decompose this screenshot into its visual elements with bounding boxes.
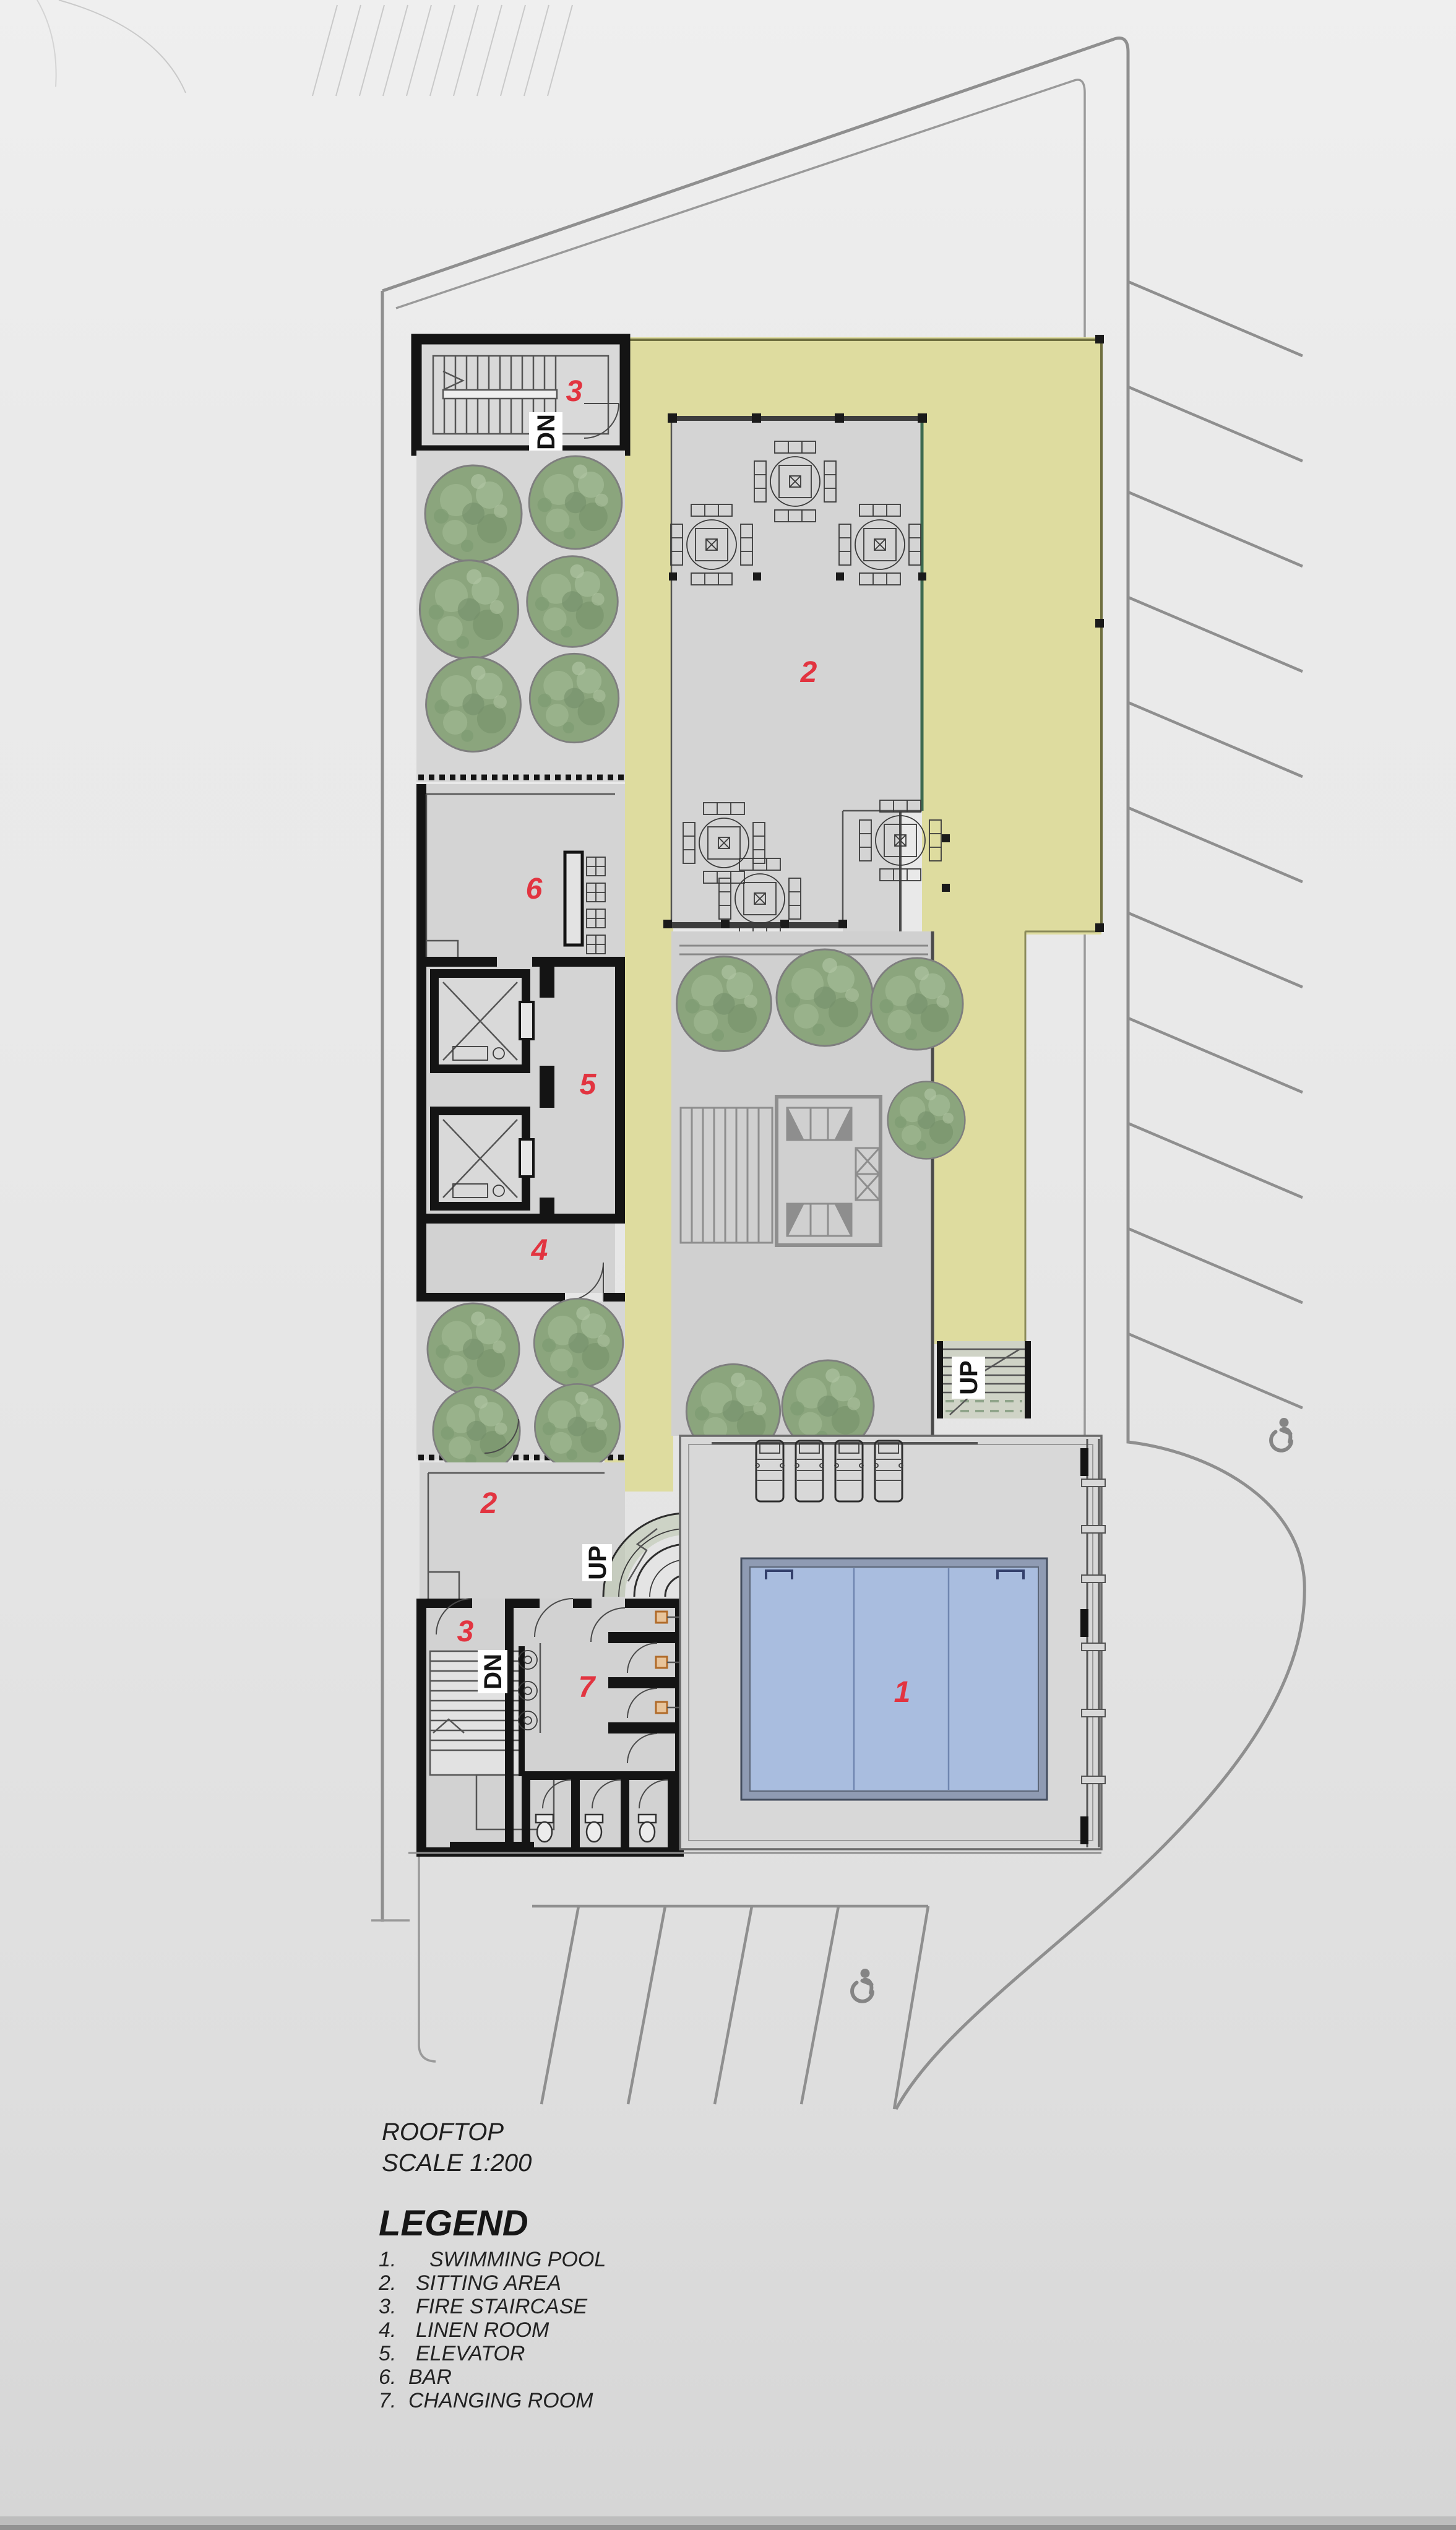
legend-item-number: 6.	[379, 2365, 396, 2389]
sitting-area-upper: 2	[663, 413, 941, 939]
room-number-pool: 1	[894, 1676, 911, 1709]
room-number-stair-bottom: 3	[457, 1615, 474, 1648]
elevator-shaft	[434, 1111, 533, 1206]
room-number-stair-top: 3	[566, 375, 583, 408]
sheet-scale: SCALE 1:200	[382, 2149, 532, 2177]
legend-item-number: 4.	[379, 2318, 396, 2342]
room-number-sitting-upper: 2	[800, 656, 817, 689]
stair-up-right: UP	[937, 1341, 1031, 1418]
stair-direction-dn: DN	[480, 1654, 507, 1690]
legend-item-label: LINEN ROOM	[416, 2318, 549, 2342]
stair-direction-dn: DN	[533, 414, 560, 450]
legend-item-number: 1.	[379, 2248, 396, 2271]
room-number-bar: 6	[526, 873, 543, 905]
legend-item-label: BAR	[408, 2365, 452, 2389]
bar-room: 6	[416, 784, 625, 967]
legend-item-label: ELEVATOR	[416, 2342, 525, 2365]
elevator-shaft	[434, 974, 533, 1069]
legend-item-number: 2.	[378, 2271, 396, 2295]
courtyard	[671, 931, 965, 1458]
planter-lower	[416, 1298, 625, 1474]
sheet-title: ROOFTOP	[382, 2118, 504, 2146]
room-number-elevator: 5	[580, 1068, 597, 1101]
room-number-changing: 7	[579, 1671, 597, 1704]
legend-item-number: 3.	[379, 2295, 396, 2318]
planter-upper	[416, 451, 625, 782]
room-number-sitting-lower: 2	[480, 1487, 498, 1520]
sheet-edge-shade	[0, 2516, 1456, 2525]
stair-direction-up: UP	[584, 1545, 611, 1580]
legend-item-label: FIRE STAIRCASE	[416, 2295, 587, 2318]
elevator-block: 5	[416, 967, 625, 1224]
legend-item-label: SITTING AREA	[416, 2271, 561, 2295]
legend-item-number: 7.	[379, 2389, 396, 2412]
legend-heading: LEGEND	[379, 2203, 528, 2243]
legend-item-label: SWIMMING POOL	[429, 2248, 606, 2271]
legend-item-number: 5.	[379, 2342, 396, 2365]
rooftop-floor-plan-sheet: { "document": { "title": "ROOFTOP", "sca…	[0, 0, 1456, 2530]
stair-direction-up: UP	[955, 1360, 983, 1395]
bottom-service-block: DN 3 7	[416, 1599, 684, 1857]
plan-canvas: 2 DN 3	[0, 0, 1456, 2530]
linen-room: 4	[416, 1224, 625, 1303]
fire-staircase-top: DN 3	[416, 339, 625, 452]
sheet-edge-line	[0, 2525, 1456, 2530]
legend-item-label: CHANGING ROOM	[408, 2389, 593, 2412]
room-number-linen: 4	[531, 1234, 548, 1267]
